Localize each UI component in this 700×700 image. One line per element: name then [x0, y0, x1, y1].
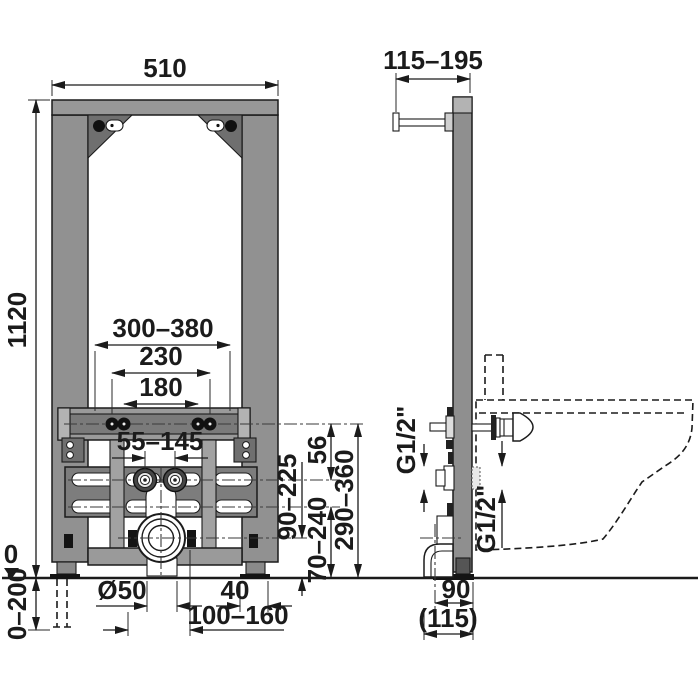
technical-drawing-page: 510 1120 0 0–200 300–380 230 180	[0, 0, 700, 700]
front-view: 510 1120 0 0–200 300–380 230 180	[2, 53, 366, 640]
dim-width: 510	[143, 53, 186, 83]
bidet-outline	[476, 355, 693, 550]
left-column-clip	[64, 534, 73, 548]
right-column-clip	[249, 534, 258, 548]
dim-stud-range: 300–380	[112, 313, 213, 343]
dim-conn-lower: G1/2"	[471, 485, 501, 554]
dim-water-span: 55–145	[117, 426, 204, 456]
dim-height: 1120	[2, 292, 32, 348]
dim-drain-diameter: Ø50	[97, 575, 146, 605]
side-column	[453, 97, 472, 572]
bidet-frame-drawing: 510 1120 0 0–200 300–380 230 180	[0, 0, 700, 700]
foot-rod-dashed	[53, 579, 71, 627]
dim-slots-to-drain: 90–225	[272, 454, 302, 541]
side-column-cap	[453, 97, 472, 113]
dim-studs-to-floor: 290–360	[329, 449, 359, 550]
dim-depth-total: (115)	[418, 603, 477, 633]
side-view: 115–195 G1/2" G1/2"	[383, 45, 693, 640]
top-crossbar	[52, 100, 278, 115]
dim-depth-range: 115–195	[383, 45, 483, 75]
side-foot	[456, 558, 470, 574]
dim-stud-outer: 230	[139, 341, 182, 371]
dim-zero: 0	[4, 539, 18, 569]
dim-drain-range: 100–160	[187, 600, 288, 630]
fixing-stud	[430, 413, 533, 441]
wall-bracket	[393, 113, 453, 131]
dim-conn-upper: G1/2"	[391, 406, 421, 475]
dim-slots-to-floor: 70–240	[302, 497, 332, 584]
drain-outlet	[128, 514, 196, 576]
dim-foot-adjust: 0–200	[2, 568, 32, 640]
dim-rail-to-slots: 56	[302, 436, 332, 465]
dim-drain-axis: 90	[442, 574, 471, 604]
dim-stud-inner: 180	[139, 372, 182, 402]
cone-nut	[513, 413, 533, 441]
corner-gussets	[88, 115, 242, 158]
stud-rail	[58, 408, 366, 440]
drain-elbow	[424, 516, 453, 577]
